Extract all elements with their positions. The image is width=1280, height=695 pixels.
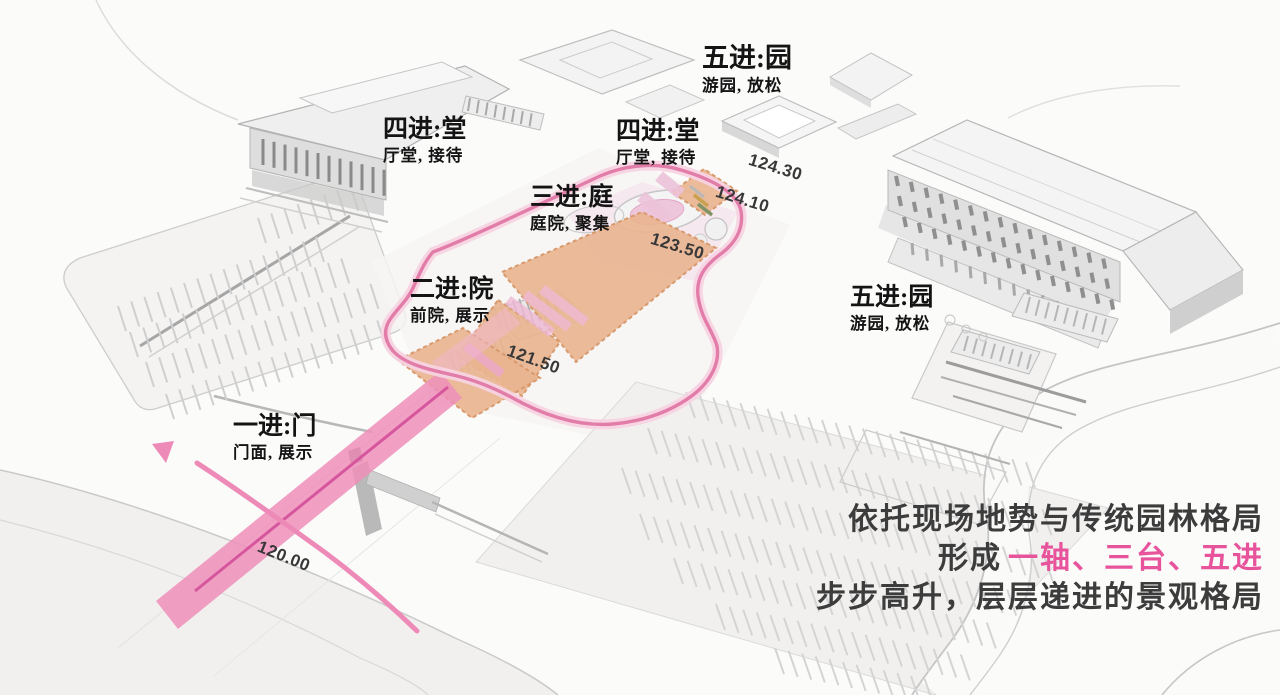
label-stage-1-gate: 一进:门 门面, 展示 xyxy=(233,414,316,462)
label-stage-5-garden-east: 五进:园 游园, 放松 xyxy=(850,285,933,333)
stage-title: 四进:堂 xyxy=(616,119,699,144)
caption-block: 依托现场地势与传统园林格局 形成一轴、三台、五进 步步高升，层层递进的景观格局 xyxy=(816,500,1264,617)
stage-subtitle: 游园, 放松 xyxy=(850,316,933,333)
stage-subtitle: 前院, 展示 xyxy=(410,308,493,325)
caption-line-2-highlight: 一轴、三台、五进 xyxy=(1008,542,1264,575)
stage-title: 四进:堂 xyxy=(383,117,466,142)
site-axis-diagram: 一进:门 门面, 展示 二进:院 前院, 展示 三进:庭 庭院, 聚集 四进:堂… xyxy=(0,0,1280,695)
stage-title: 五进:园 xyxy=(702,45,792,72)
stage-subtitle: 厅堂, 接待 xyxy=(616,150,699,167)
stage-title: 五进:园 xyxy=(850,285,933,310)
stage-subtitle: 游园, 放松 xyxy=(702,78,792,95)
caption-line-2-prefix: 形成 xyxy=(938,542,1002,575)
stage-title: 二进:院 xyxy=(410,277,493,302)
caption-line-2: 形成一轴、三台、五进 xyxy=(816,539,1264,578)
label-stage-4-hall-west: 四进:堂 厅堂, 接待 xyxy=(383,117,466,165)
label-stage-3-court: 三进:庭 庭院, 聚集 xyxy=(530,185,613,233)
caption-line-3: 步步高升，层层递进的景观格局 xyxy=(816,578,1264,617)
stage-subtitle: 厅堂, 接待 xyxy=(383,148,466,165)
label-stage-2-yard: 二进:院 前院, 展示 xyxy=(410,277,493,325)
stage-title: 三进:庭 xyxy=(530,185,613,210)
caption-line-1: 依托现场地势与传统园林格局 xyxy=(816,500,1264,539)
label-stage-5-garden-north: 五进:园 游园, 放松 xyxy=(702,45,792,95)
label-stage-4-hall-center: 四进:堂 厅堂, 接待 xyxy=(616,119,699,167)
stage-subtitle: 门面, 展示 xyxy=(233,445,316,462)
stage-subtitle: 庭院, 聚集 xyxy=(530,216,613,233)
stage-title: 一进:门 xyxy=(233,414,316,439)
